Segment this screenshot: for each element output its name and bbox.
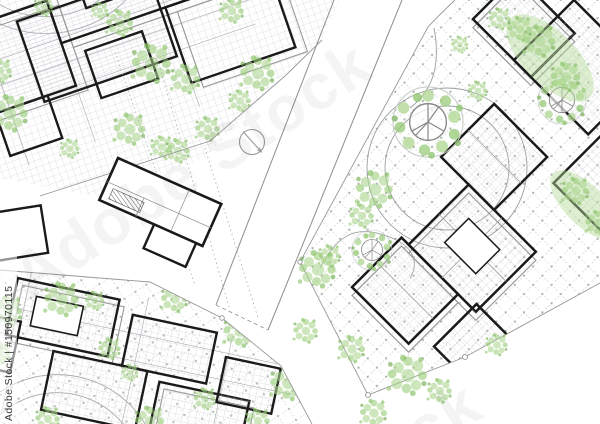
watermark-stock-id: Adobe Stock | #150970115 <box>3 286 15 421</box>
parcel-vertex-node <box>298 260 302 264</box>
site-plan-page: Adobe Stock Adobe Stock Adobe Stock | #1… <box>0 0 600 424</box>
parcel-vertex-node <box>366 393 371 398</box>
parcel-vertex-node <box>220 316 225 321</box>
site-plan-drawing: Adobe Stock Adobe Stock Adobe Stock | #1… <box>0 0 600 424</box>
parcel-vertex-node <box>463 355 468 360</box>
